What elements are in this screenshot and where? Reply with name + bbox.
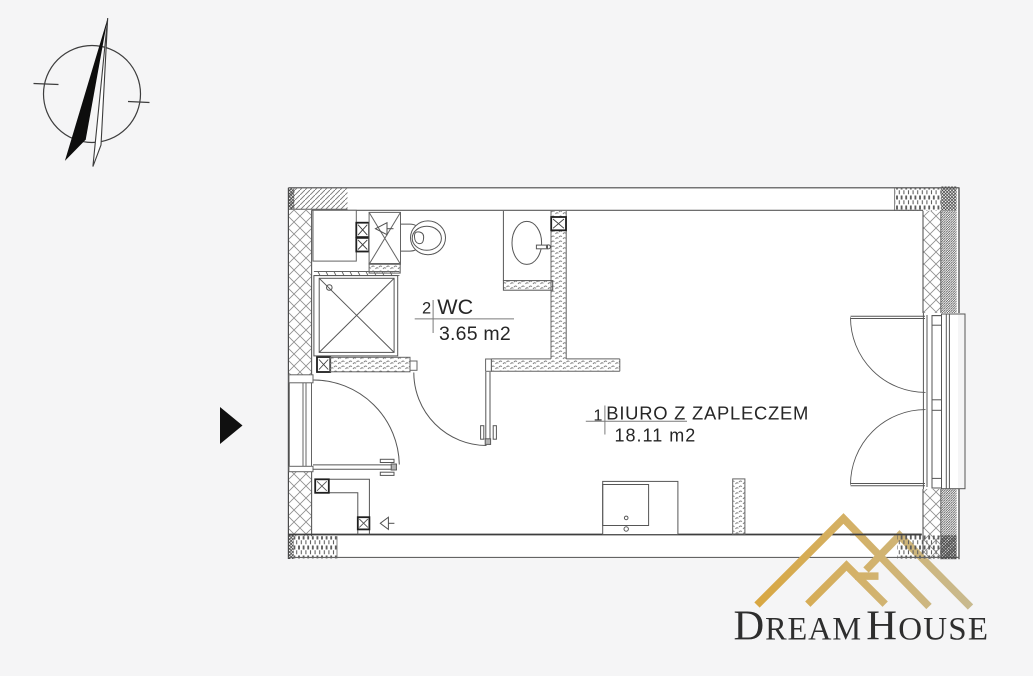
svg-text:BIURO Z ZAPLECZEM: BIURO Z ZAPLECZEM [606,402,809,423]
svg-text:3.65 m2: 3.65 m2 [439,323,511,345]
svg-text:WC: WC [437,295,473,319]
svg-text:DREAM: DREAM [734,603,863,650]
svg-text:18.11 m2: 18.11 m2 [615,426,697,446]
svg-text:2: 2 [422,299,431,317]
svg-text:1: 1 [594,408,603,425]
